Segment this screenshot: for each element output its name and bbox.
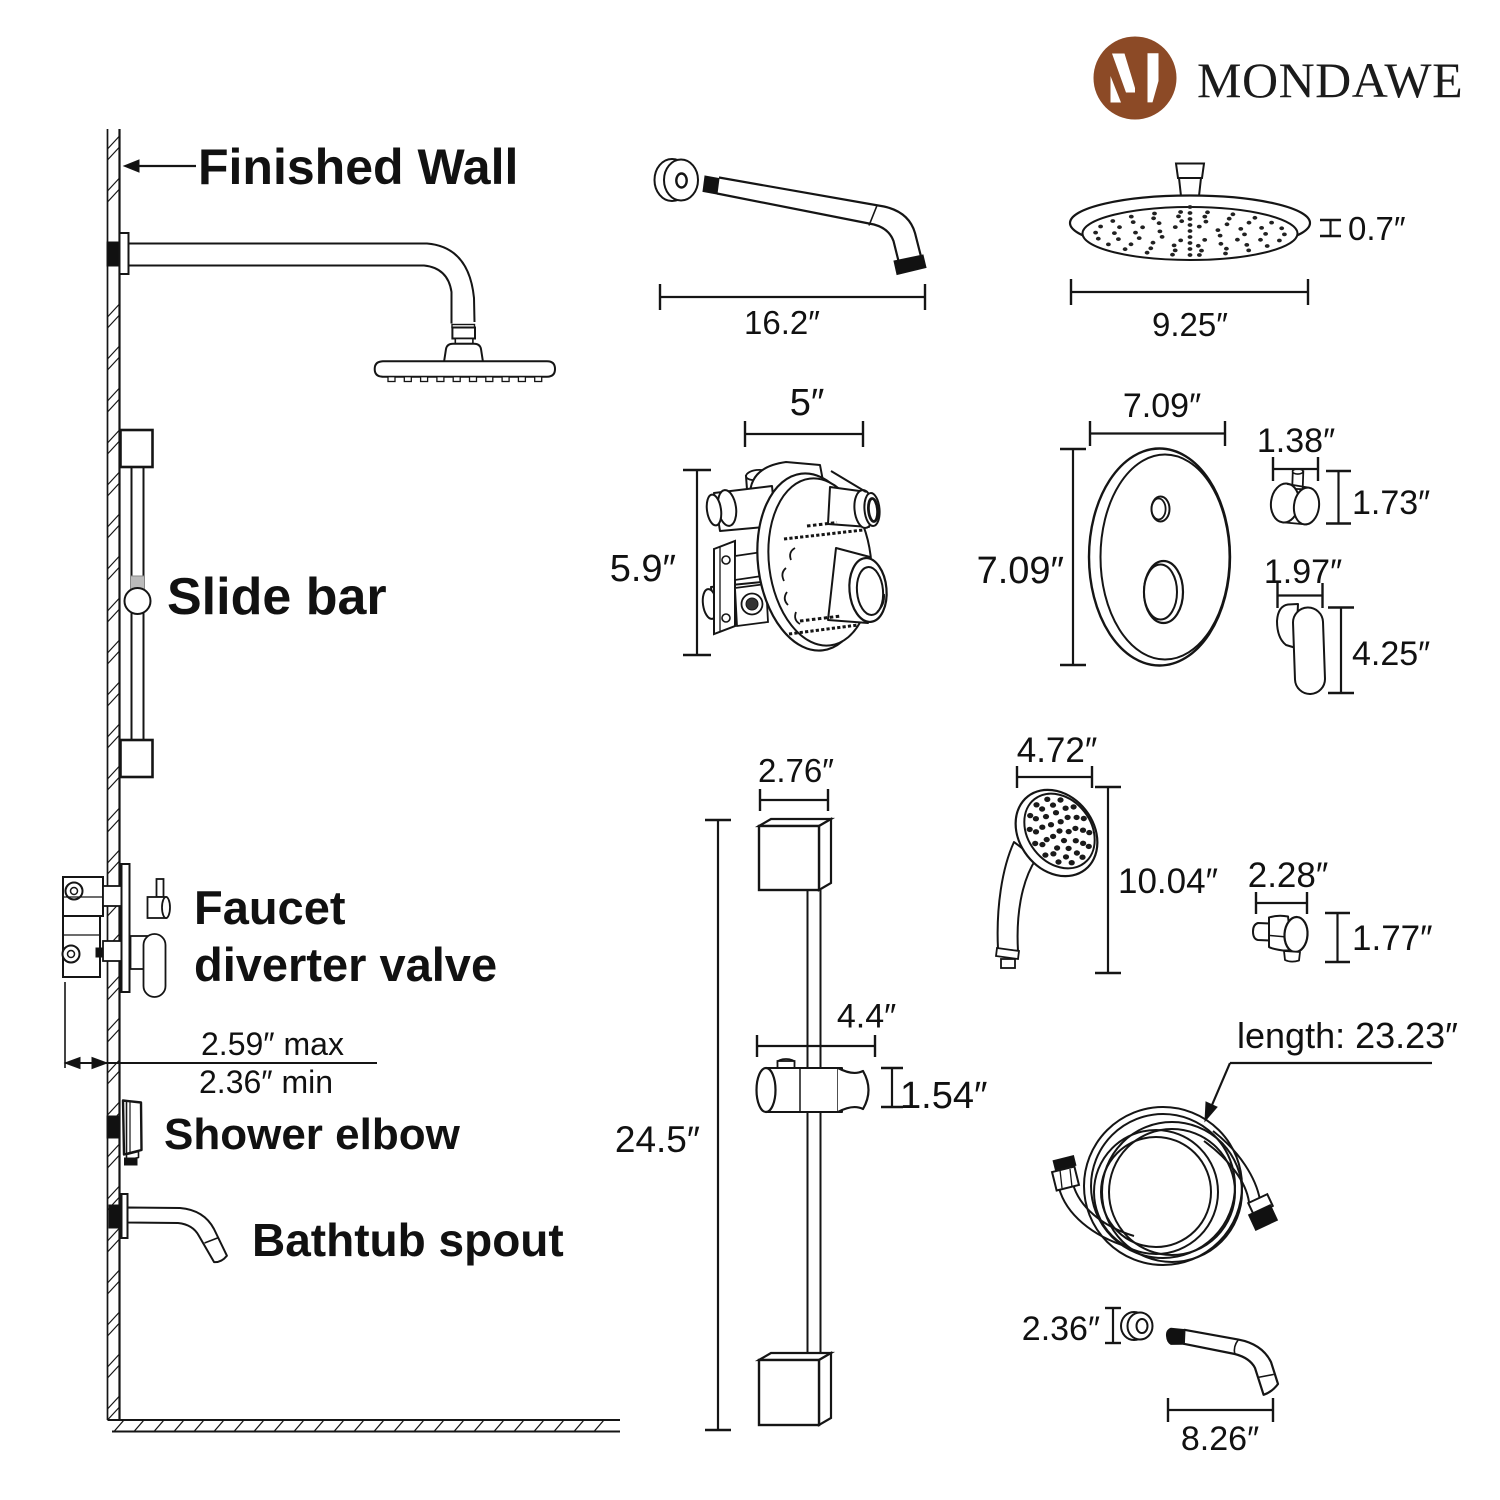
svg-text:24.5″: 24.5″ [615,1119,700,1160]
svg-text:1.73″: 1.73″ [1352,484,1430,522]
svg-text:9.25″: 9.25″ [1152,306,1228,343]
svg-text:10.04″: 10.04″ [1118,862,1218,901]
svg-text:8.26″: 8.26″ [1181,1420,1259,1458]
svg-text:2.59″ max: 2.59″ max [201,1026,344,1062]
svg-text:5.9″: 5.9″ [610,548,676,590]
svg-text:1.38″: 1.38″ [1257,422,1335,460]
svg-text:2.76″: 2.76″ [758,752,834,789]
svg-text:16.2″: 16.2″ [744,304,820,341]
svg-text:Faucet: Faucet [194,881,346,934]
svg-text:2.36″ min: 2.36″ min [199,1064,333,1100]
svg-text:length: 23.23″: length: 23.23″ [1237,1015,1458,1056]
svg-text:5″: 5″ [790,382,825,424]
svg-text:diverter valve: diverter valve [194,938,497,991]
svg-text:2.36″: 2.36″ [1022,1310,1100,1348]
svg-text:1.97″: 1.97″ [1264,553,1342,591]
svg-text:1.54″: 1.54″ [900,1075,987,1117]
svg-text:2.28″: 2.28″ [1248,856,1329,895]
svg-text:4.25″: 4.25″ [1352,635,1430,673]
svg-text:MONDAWE: MONDAWE [1197,52,1463,108]
svg-text:Bathtub spout: Bathtub spout [252,1214,564,1266]
svg-text:Finished Wall: Finished Wall [198,139,518,195]
svg-text:4.72″: 4.72″ [1017,731,1098,770]
svg-text:Slide bar: Slide bar [167,568,387,626]
svg-text:1.77″: 1.77″ [1352,919,1433,958]
svg-text:Shower elbow: Shower elbow [164,1110,461,1159]
svg-text:4.4″: 4.4″ [837,998,896,1036]
svg-text:7.09″: 7.09″ [1123,387,1201,425]
svg-text:7.09″: 7.09″ [977,550,1064,592]
svg-text:0.7″: 0.7″ [1348,210,1406,247]
